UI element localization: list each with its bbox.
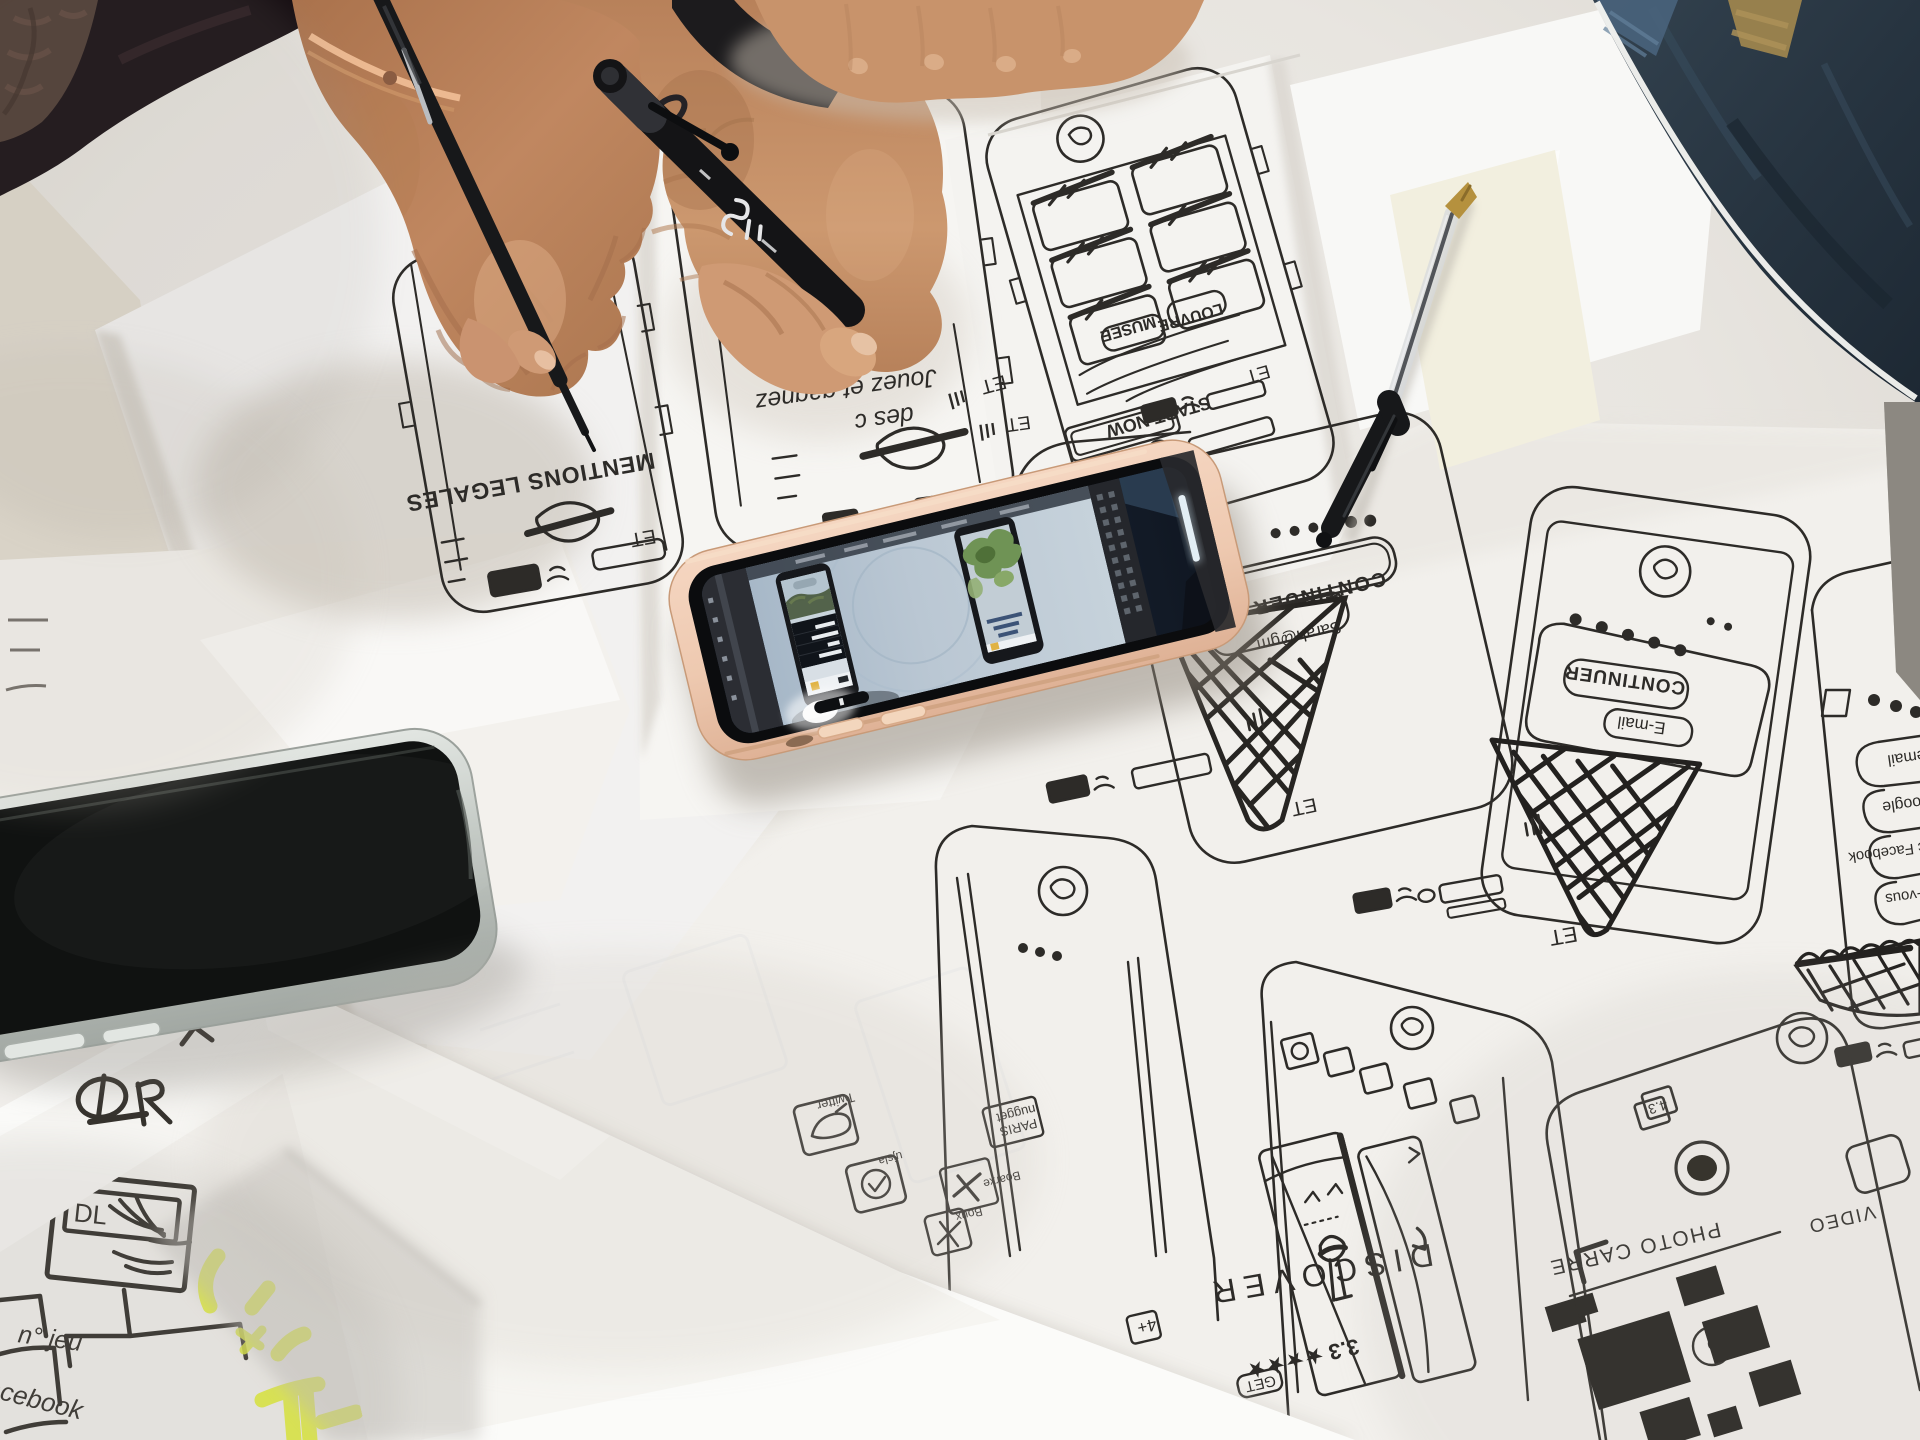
- svg-text:ET: ET: [1547, 921, 1579, 951]
- svg-text:ET: ET: [1005, 411, 1032, 435]
- svg-text:ET: ET: [629, 524, 658, 550]
